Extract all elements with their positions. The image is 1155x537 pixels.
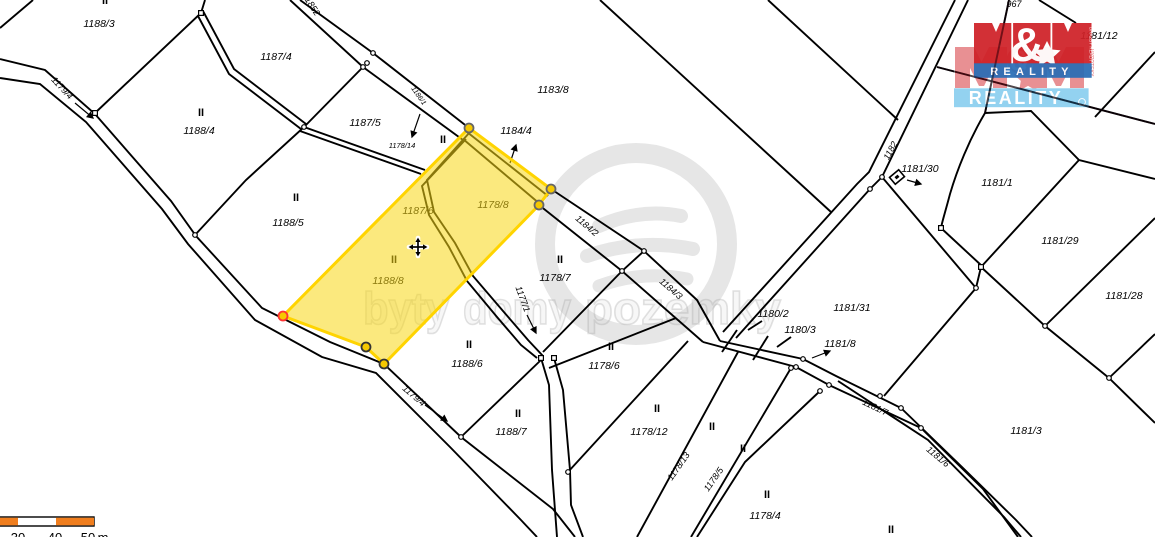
svg-text:1178/6: 1178/6 xyxy=(588,360,619,372)
svg-text:1188/3: 1188/3 xyxy=(83,18,114,30)
svg-text:&: & xyxy=(1010,18,1044,71)
svg-text:II: II xyxy=(654,403,660,415)
svg-text:1181/8: 1181/8 xyxy=(824,338,855,350)
svg-text:50: 50 xyxy=(81,530,95,537)
svg-text:40: 40 xyxy=(48,530,62,537)
svg-text:II: II xyxy=(198,107,204,119)
svg-text:1181/3: 1181/3 xyxy=(1010,425,1041,437)
svg-text:II: II xyxy=(888,524,894,536)
svg-text:II: II xyxy=(293,192,299,204)
svg-text:1181/30: 1181/30 xyxy=(901,163,938,175)
svg-text:II: II xyxy=(709,421,715,433)
svg-text:1188/5: 1188/5 xyxy=(272,217,303,229)
svg-text:II: II xyxy=(557,254,563,266)
svg-text:1184/4: 1184/4 xyxy=(500,125,531,137)
svg-text:REALITY: REALITY xyxy=(969,88,1064,108)
svg-text:1188/4: 1188/4 xyxy=(183,125,214,137)
svg-text:1187/4: 1187/4 xyxy=(260,51,291,63)
svg-text:1181/31: 1181/31 xyxy=(833,302,870,314)
svg-text:1188/6: 1188/6 xyxy=(451,358,482,370)
svg-text:II: II xyxy=(102,0,108,7)
svg-text:II: II xyxy=(740,443,746,455)
svg-text:1188/7: 1188/7 xyxy=(495,426,527,438)
svg-text:II: II xyxy=(764,489,770,501)
svg-text:1178/14: 1178/14 xyxy=(389,141,416,150)
svg-text:1180/3: 1180/3 xyxy=(784,324,815,336)
svg-text:1181/1: 1181/1 xyxy=(981,177,1012,189)
svg-text:1181/28: 1181/28 xyxy=(1105,290,1142,302)
svg-text:REALITY: REALITY xyxy=(990,66,1073,78)
svg-text:II: II xyxy=(515,408,521,420)
svg-text:DRAZBY REALITY: DRAZBY REALITY xyxy=(1089,27,1094,65)
svg-text:1181/29: 1181/29 xyxy=(1041,235,1078,247)
svg-text:1183/8: 1183/8 xyxy=(537,84,568,96)
svg-text:II: II xyxy=(440,134,446,146)
svg-text:pozemky: pozemky xyxy=(585,283,781,334)
svg-text:1187/5: 1187/5 xyxy=(349,117,380,129)
svg-text:m: m xyxy=(98,530,109,537)
svg-text:1178/12: 1178/12 xyxy=(630,426,667,438)
svg-text:30: 30 xyxy=(11,530,25,537)
svg-text:1178/4: 1178/4 xyxy=(749,510,780,522)
svg-text:II: II xyxy=(608,341,614,353)
svg-text:II: II xyxy=(466,339,472,351)
svg-text:1178/7: 1178/7 xyxy=(539,272,571,284)
svg-text:1180/2: 1180/2 xyxy=(757,308,788,320)
